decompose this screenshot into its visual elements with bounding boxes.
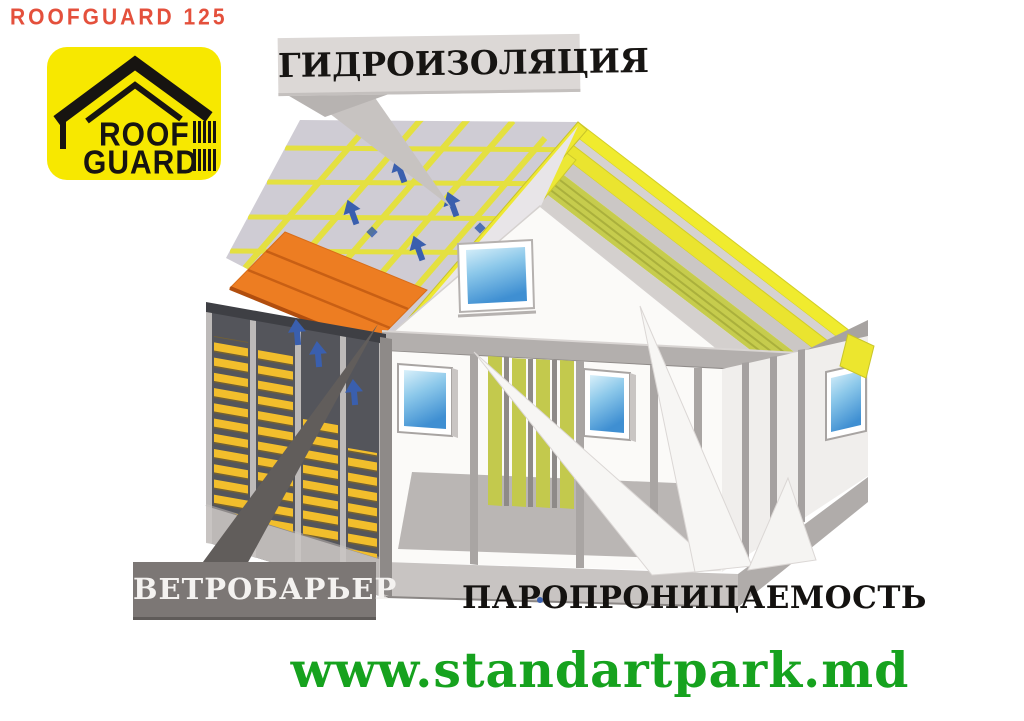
label-waterproofing: ГИДРОИЗОЛЯЦИЯ <box>278 34 581 96</box>
logo-barcode-top <box>193 121 216 143</box>
poster: ROOFGUARD 125 ROOF GUARD ГИДРОИЗОЛЯЦИЯ В… <box>0 0 1024 721</box>
label-wind-barrier: ВЕТРОБАРЬЕР <box>133 562 376 620</box>
roofguard-logo: ROOF GUARD <box>47 47 221 180</box>
label-vapor-permeability: ПАРОПРОНИЦАЕМОСТЬ <box>462 580 872 616</box>
window-center <box>584 369 636 442</box>
logo-word-guard: GUARD <box>83 145 198 180</box>
brand-title: ROOFGUARD 125 <box>10 5 228 31</box>
website-url: www.standartpark.md <box>240 641 960 697</box>
corner-post <box>380 337 392 597</box>
attic-window <box>458 240 536 316</box>
window-left <box>398 364 458 438</box>
logo-barcode-bottom <box>193 149 216 171</box>
